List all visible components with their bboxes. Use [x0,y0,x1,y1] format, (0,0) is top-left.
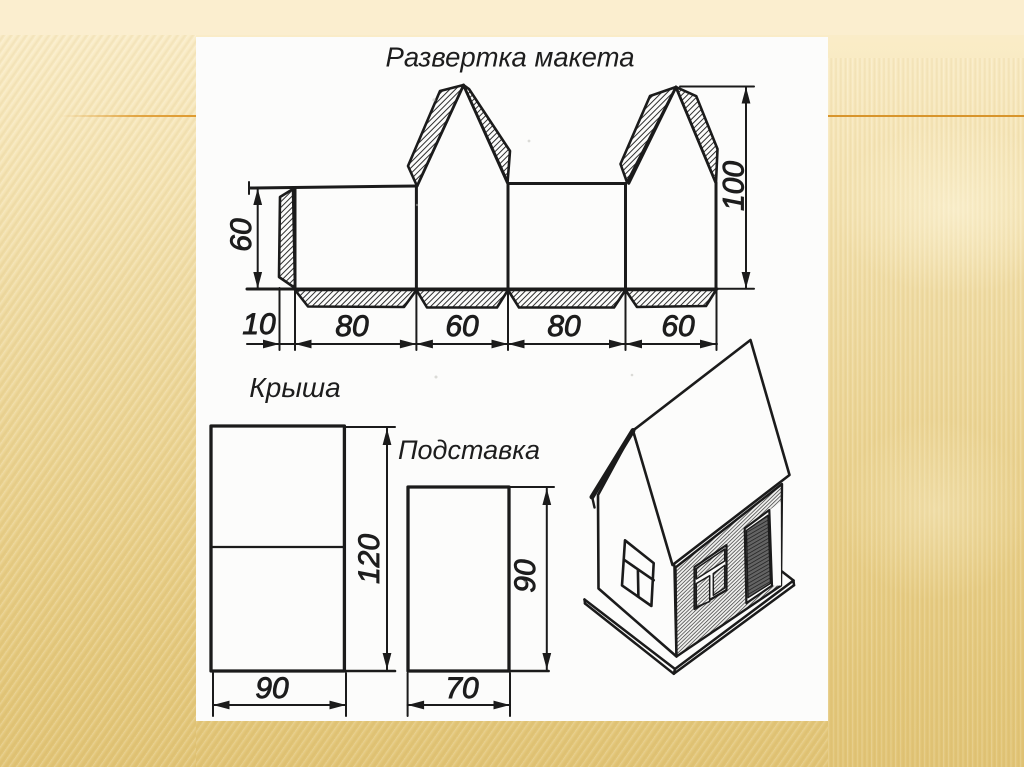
svg-text:80: 80 [547,310,581,343]
svg-text:10: 10 [242,308,276,341]
svg-text:70: 70 [445,672,479,705]
svg-text:60: 60 [225,218,258,252]
svg-text:120: 120 [353,534,386,584]
svg-text:Крыша: Крыша [249,372,341,403]
svg-text:60: 60 [661,310,695,343]
svg-text:Подставка: Подставка [398,435,540,465]
svg-text:100: 100 [718,161,751,211]
svg-text:90: 90 [255,672,289,705]
svg-text:90: 90 [509,559,542,593]
svg-text:80: 80 [335,310,369,343]
svg-text:60: 60 [445,310,479,343]
svg-text:Развертка макета: Развертка макета [386,42,635,73]
